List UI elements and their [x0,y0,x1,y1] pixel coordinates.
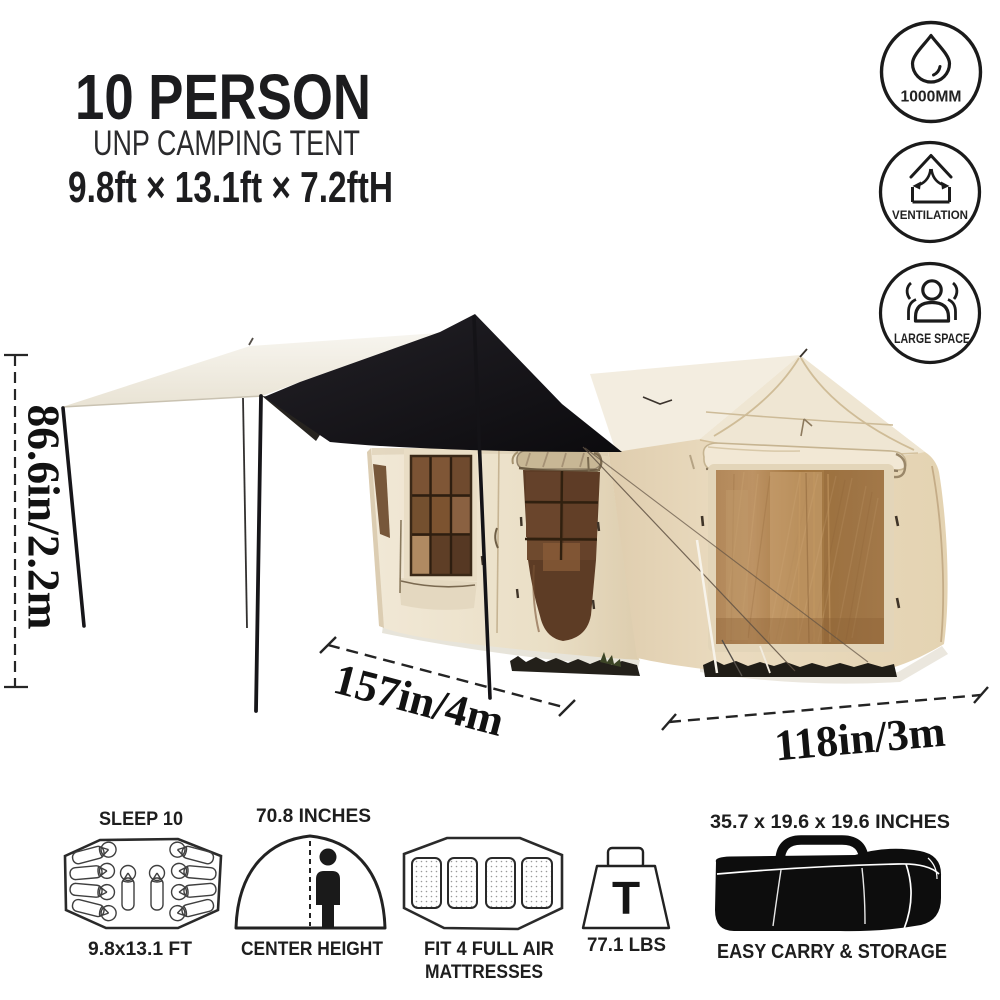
svg-text:70.8 INCHES: 70.8 INCHES [256,806,371,827]
svg-text:1000MM: 1000MM [901,89,962,106]
svg-text:10 PERSON: 10 PERSON [75,61,371,133]
svg-text:35.7 x 19.6 x 19.6 INCHES: 35.7 x 19.6 x 19.6 INCHES [710,812,950,833]
svg-text:86.6in/2.2m: 86.6in/2.2m [19,405,69,630]
svg-text:9.8ft × 13.1ft × 7.2ftH: 9.8ft × 13.1ft × 7.2ftH [68,163,393,212]
svg-text:LARGE SPACE: LARGE SPACE [894,331,970,346]
svg-text:CENTER HEIGHT: CENTER HEIGHT [241,939,383,960]
svg-text:T: T [612,872,640,924]
svg-text:EASY CARRY & STORAGE: EASY CARRY & STORAGE [717,941,947,963]
svg-text:FIT 4 FULL AIR: FIT 4 FULL AIR [424,939,554,960]
svg-text:MATTRESSES: MATTRESSES [425,962,543,983]
svg-text:UNP CAMPING TENT: UNP CAMPING TENT [93,124,360,163]
svg-text:SLEEP 10: SLEEP 10 [99,809,183,830]
svg-text:157in/4m: 157in/4m [329,654,509,746]
svg-text:9.8x13.1 FT: 9.8x13.1 FT [88,939,192,960]
svg-text:77.1 LBS: 77.1 LBS [587,935,666,956]
svg-text:118in/3m: 118in/3m [772,707,947,771]
svg-text:VENTILATION: VENTILATION [892,208,968,222]
